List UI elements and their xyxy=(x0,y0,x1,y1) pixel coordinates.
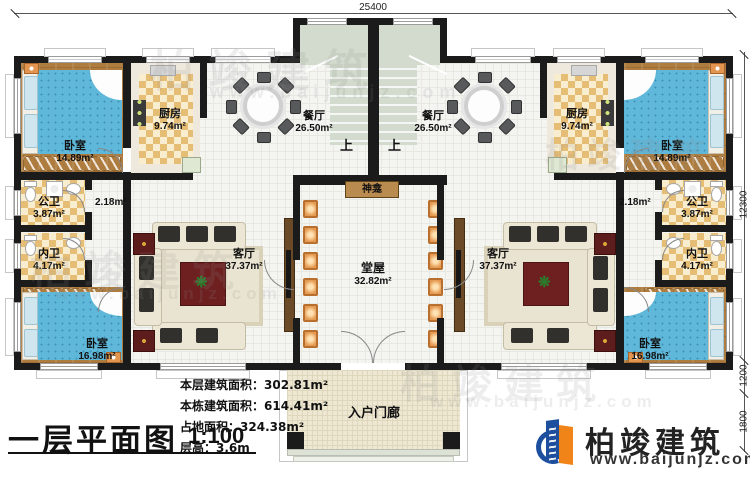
hall-chair xyxy=(303,226,318,244)
corridor-area-left: 2.18m² xyxy=(95,197,127,208)
window xyxy=(645,56,699,63)
wall-bathL-right-a xyxy=(85,172,92,190)
stairs-up-right: 上 xyxy=(388,135,401,154)
dimension-right-seg-a: 1200 xyxy=(739,358,750,394)
hall-chair xyxy=(303,304,318,322)
room-label-dining-left: 餐厅26.50m² xyxy=(283,110,345,134)
shrine-banner: 神龛 xyxy=(345,181,399,198)
dimension-right-total: 12300 xyxy=(739,175,750,235)
window xyxy=(475,56,531,63)
kitchen-sink-right xyxy=(571,65,597,76)
fridge-left xyxy=(182,157,201,173)
window xyxy=(307,18,347,25)
porch-column-right xyxy=(443,432,460,449)
porch-step-2 xyxy=(293,456,454,462)
stair-landing-right xyxy=(379,25,440,65)
room-label-public-bath-right: 公卫3.87m² xyxy=(672,196,722,220)
room-label-living-right: 客厅37.37m² xyxy=(469,248,527,272)
hall-chair xyxy=(428,278,443,296)
wall-left-wing-mid xyxy=(14,172,131,180)
room-label-public-bath-left: 公卫3.87m² xyxy=(24,196,74,220)
wall-hall-right-upper xyxy=(437,185,444,260)
wall-bathR-left-c xyxy=(655,260,662,280)
window xyxy=(726,190,733,216)
hall-chair xyxy=(303,278,318,296)
prayer-mat xyxy=(594,233,616,255)
logo-building-orange xyxy=(559,425,573,465)
window xyxy=(726,302,733,352)
watermark: www.baijunjz.com xyxy=(55,284,282,304)
wall-kitchenL-bottom xyxy=(131,173,193,180)
porch-step-1 xyxy=(287,449,460,456)
stat-floor-area: 本层建筑面积：302.81m² xyxy=(180,376,328,393)
dimension-line-top xyxy=(14,13,733,14)
stairs-up-left: 上 xyxy=(340,135,353,154)
hall-chair xyxy=(303,252,318,270)
dining-chair xyxy=(478,132,492,143)
stat-footprint-area: 占地面积：324.38m² xyxy=(180,418,304,435)
nightstand xyxy=(710,63,725,74)
window xyxy=(557,56,601,63)
wall-bedroomBR-top xyxy=(655,280,733,287)
watermark: www.baijunjz.com xyxy=(210,82,461,103)
wall-stair-block-right xyxy=(440,18,447,63)
wall-bedroomTL-kitchen xyxy=(123,63,131,148)
dimension-right-seg-b: 1800 xyxy=(739,404,750,440)
window xyxy=(14,78,21,134)
window xyxy=(649,363,707,370)
room-label-hall: 堂屋32.82m² xyxy=(338,262,408,287)
window xyxy=(393,18,433,25)
window xyxy=(14,243,21,269)
washer xyxy=(46,181,63,197)
wall-hall-left-lower xyxy=(293,318,300,370)
room-label-bedroom-bottom-right: 卧室16.98m² xyxy=(622,338,678,362)
window xyxy=(14,190,21,216)
stat-floor-height: 层高：3.6m xyxy=(180,439,250,456)
wall-bathR-divider xyxy=(655,225,733,232)
nightstand xyxy=(24,63,39,74)
dining-chair xyxy=(478,72,492,83)
hall-chair xyxy=(303,330,318,348)
room-label-dining-right: 餐厅26.50m² xyxy=(402,110,464,134)
room-label-bedroom-bottom-left: 卧室16.98m² xyxy=(69,338,125,362)
room-label-bedroom-top-left: 卧室14.89m² xyxy=(47,140,103,164)
wall-hall-left-upper xyxy=(293,185,300,260)
window xyxy=(48,56,102,63)
corridor-area-right: 2.18m² xyxy=(619,197,651,208)
brand-url: www.baijunjz.com xyxy=(590,451,750,469)
watermark: www.baijunjz.com xyxy=(430,392,657,412)
dining-chair xyxy=(257,132,271,143)
wall-kitchenR-dining xyxy=(540,63,547,118)
plant: ❋ xyxy=(538,275,551,290)
brand-logo-icon xyxy=(536,414,576,470)
wall-bathL-divider xyxy=(14,225,92,232)
watermark: 柏竣建筑 xyxy=(545,128,713,177)
window xyxy=(160,363,246,370)
room-label-kitchen-left: 厨房9.74m² xyxy=(142,108,198,132)
logo-building-blue xyxy=(546,419,559,461)
window xyxy=(726,243,733,269)
stat-building-area: 本栋建筑面积：614.41m² xyxy=(180,397,328,414)
dimension-top-width: 25400 xyxy=(340,2,406,13)
window xyxy=(14,302,21,352)
dining-chair xyxy=(511,100,522,114)
window xyxy=(726,78,733,134)
window xyxy=(40,363,98,370)
prayer-mat xyxy=(133,330,155,352)
prayer-mat xyxy=(594,330,616,352)
dining-table-right xyxy=(464,86,504,126)
washer xyxy=(684,181,701,197)
floor-plan-canvas: ❋ ❋ xyxy=(0,0,750,481)
hall-chair xyxy=(303,200,318,218)
room-label-private-bath-right: 内卫4.17m² xyxy=(672,248,722,272)
